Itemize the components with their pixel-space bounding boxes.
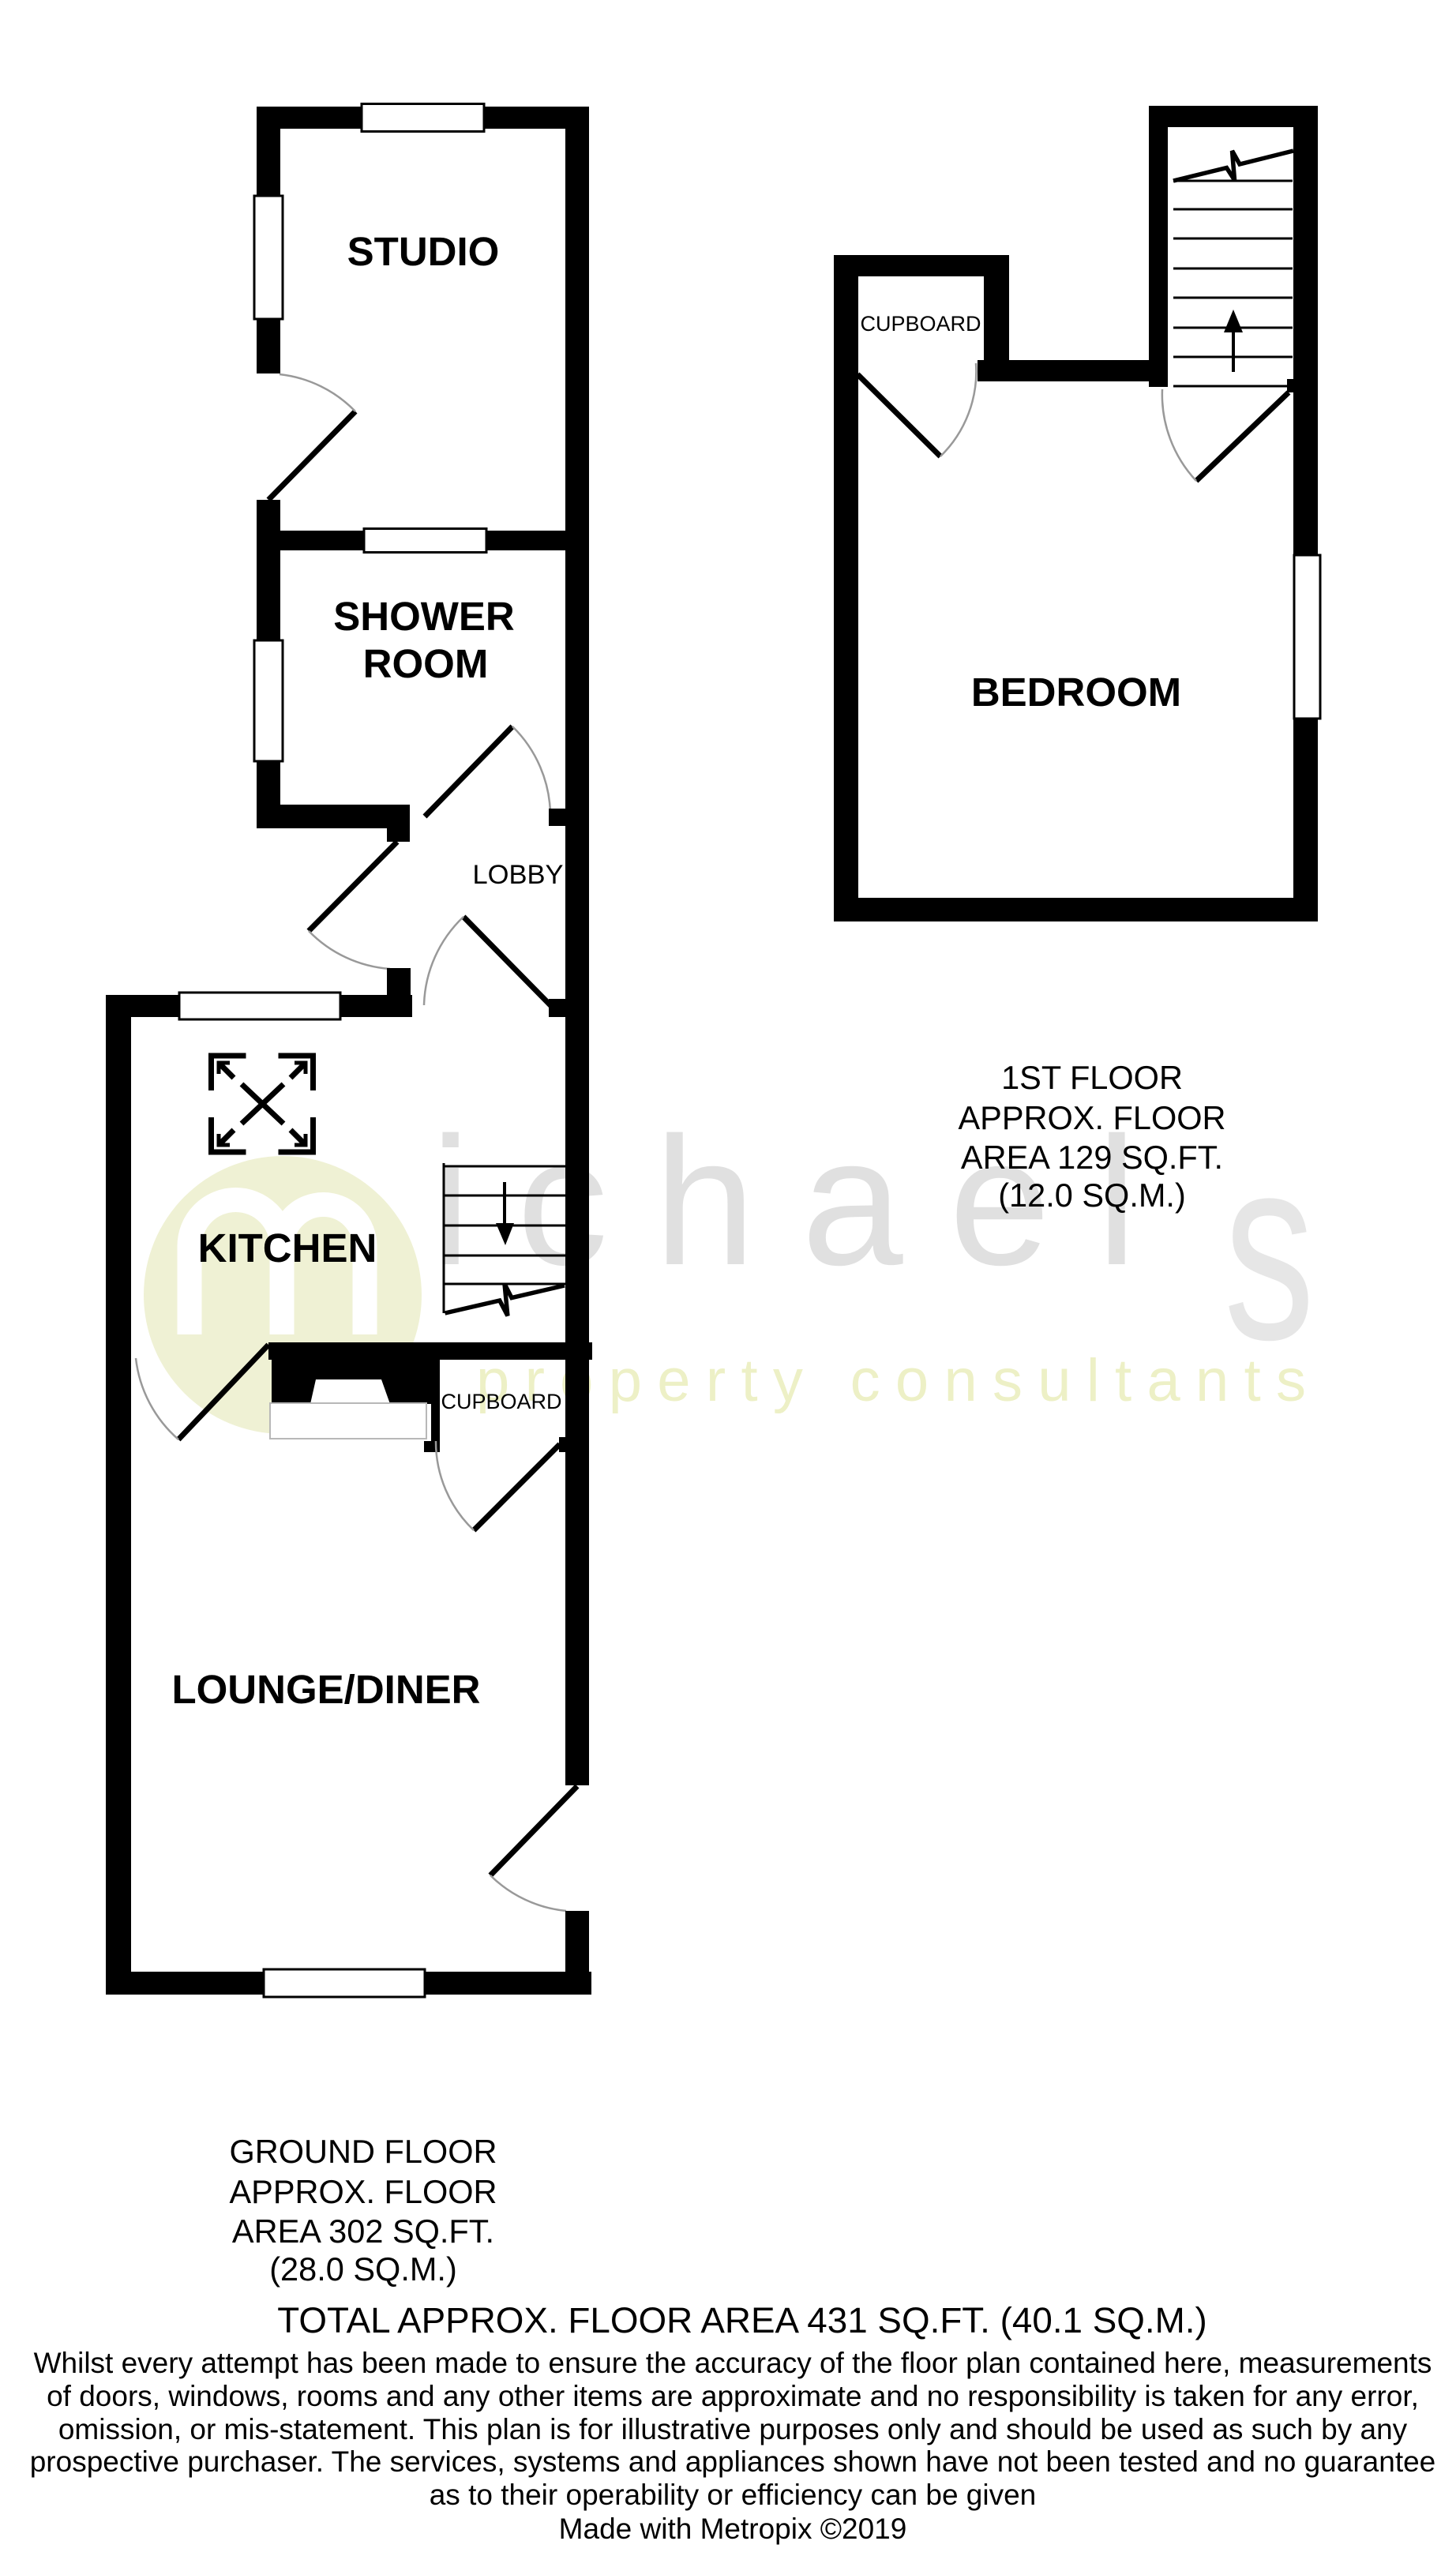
svg-text:Made with Metropix ©2019: Made with Metropix ©2019 [559, 2513, 907, 2545]
svg-text:SHOWER: SHOWER [333, 594, 515, 639]
svg-text:CUPBOARD: CUPBOARD [441, 1390, 561, 1413]
svg-text:ROOM: ROOM [363, 641, 489, 686]
svg-text:APPROX. FLOOR: APPROX. FLOOR [230, 2173, 497, 2210]
svg-text:LOUNGE/DINER: LOUNGE/DINER [171, 1667, 480, 1712]
svg-text:STUDIO: STUDIO [347, 229, 500, 274]
svg-text:(12.0 SQ.M.): (12.0 SQ.M.) [998, 1177, 1186, 1214]
svg-text:CUPBOARD: CUPBOARD [860, 312, 981, 336]
svg-text:KITCHEN: KITCHEN [198, 1225, 377, 1270]
svg-text:APPROX. FLOOR: APPROX. FLOOR [959, 1099, 1226, 1136]
svg-text:AREA 129 SQ.FT.: AREA 129 SQ.FT. [961, 1139, 1223, 1176]
svg-text:Whilst every attempt has been: Whilst every attempt has been made to en… [34, 2347, 1432, 2379]
svg-text:TOTAL APPROX. FLOOR AREA 431 S: TOTAL APPROX. FLOOR AREA 431 SQ.FT. (40.… [277, 2300, 1207, 2340]
svg-text:1ST FLOOR: 1ST FLOOR [1001, 1059, 1183, 1096]
svg-text:omission, or mis-statement. Th: omission, or mis-statement. This plan is… [58, 2413, 1408, 2445]
svg-text:BEDROOM: BEDROOM [971, 670, 1181, 715]
svg-text:as to their operability or eff: as to their operability or efficiency ca… [430, 2479, 1037, 2511]
svg-text:AREA 302 SQ.FT.: AREA 302 SQ.FT. [232, 2213, 494, 2250]
svg-text:LOBBY: LOBBY [472, 860, 563, 890]
svg-text:prospective purchaser. The ser: prospective purchaser. The services, sys… [30, 2445, 1436, 2478]
svg-text:(28.0 SQ.M.): (28.0 SQ.M.) [269, 2250, 457, 2288]
svg-text:of doors, windows, rooms and a: of doors, windows, rooms and any other i… [47, 2380, 1419, 2412]
svg-text:GROUND FLOOR: GROUND FLOOR [230, 2133, 497, 2170]
